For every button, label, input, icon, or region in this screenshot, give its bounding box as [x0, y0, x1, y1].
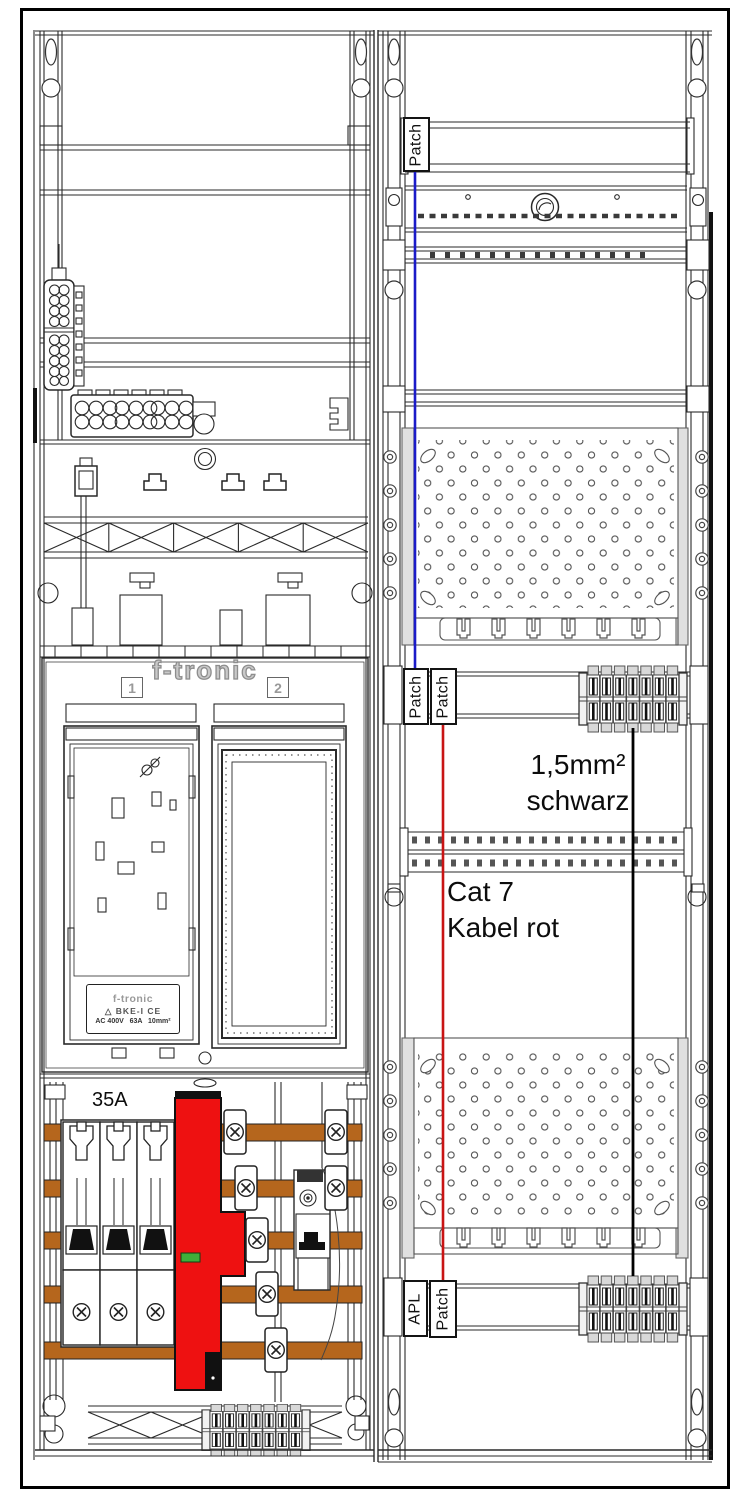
cable-truss-left: [44, 517, 368, 558]
fuse-unit: [63, 1122, 100, 1345]
apl-label-text: APL: [407, 1293, 425, 1324]
fuse-unit: [100, 1122, 137, 1345]
meter-field-2-badge: 2: [267, 677, 289, 698]
cable-hook-icon: [457, 1228, 470, 1247]
patch-label-bottom: Patch: [429, 1280, 457, 1338]
distribution-terminal-block-horizontal: [71, 390, 348, 437]
triangle-logo-icon: △: [105, 1006, 113, 1016]
label-strip-1: [66, 704, 196, 722]
distribution-terminal-strip-vertical: [44, 244, 84, 390]
cover-lock-panel: [386, 186, 706, 232]
fuse-assembly: [61, 1120, 176, 1347]
bke-brand: f-tronic: [87, 993, 179, 1005]
busbar-clamp: [235, 1166, 257, 1210]
keystone-jack-icon: [144, 474, 166, 490]
cable-hook-icon: [562, 619, 575, 638]
bke-ratings: AC 400V 63A 10mm²: [87, 1018, 179, 1025]
patch-label-mid-right: Patch: [430, 668, 457, 725]
wiring-diagram-page: Patch Patch Patch APL Patch 1,5mm² schwa…: [0, 0, 750, 1497]
bke-model-line: △ BKE-I CE: [87, 1006, 179, 1017]
cable-hook-icon: [597, 619, 610, 638]
label-strip-2: [214, 704, 344, 722]
cable-hook-icon: [492, 619, 505, 638]
black-cable-note-line2: schwarz: [493, 783, 663, 819]
red-cable-note: Cat 7 Kabel rot: [447, 874, 559, 946]
bke-type-label: f-tronic △ BKE-I CE AC 400V 63A 10mm²: [86, 984, 180, 1034]
lock-knob-icon: [195, 449, 216, 470]
cable-hook-icon: [632, 619, 645, 638]
fuse-rating-label: 35A: [92, 1089, 128, 1112]
patch-label-top-text: Patch: [408, 123, 426, 166]
multimedia-module-left: [38, 449, 372, 646]
rail-slot: [352, 39, 370, 97]
red-cable-note-line1: Cat 7: [447, 874, 559, 910]
busbar-clamp: [325, 1166, 347, 1210]
busbar-clamp: [256, 1272, 278, 1316]
cable-hook-icon: [562, 1228, 575, 1247]
switch-toggle-slot: [205, 1352, 221, 1390]
cable-hook-icon: [527, 619, 540, 638]
rail-slot: [42, 39, 60, 97]
meter-field-1-badge: 1: [121, 677, 143, 698]
terminal-block-bottom-left: [202, 1404, 310, 1455]
patch-label-bottom-text: Patch: [434, 1288, 452, 1331]
patch-label-mid-right-text: Patch: [435, 675, 453, 718]
patch-label-mid-left: Patch: [403, 668, 429, 725]
meter-cabinet-left-field: [33, 30, 378, 1462]
meter-field-2: [212, 726, 346, 1048]
busbar-clamp: [246, 1218, 268, 1262]
status-indicator: [181, 1253, 200, 1262]
busbar-clamp: [265, 1328, 287, 1372]
perforated-mounting-plate-1: [384, 428, 708, 645]
black-cable-note-line1: 1,5mm²: [493, 747, 663, 783]
cable-hook-icon: [527, 1228, 540, 1247]
bke-model: BKE-I: [116, 1006, 144, 1016]
fuse-unit: [137, 1122, 174, 1345]
ce-mark: CE: [147, 1006, 161, 1016]
keystone-jack-icon: [264, 474, 286, 490]
cable-hook-icon: [492, 1228, 505, 1247]
apl-label: APL: [403, 1280, 428, 1337]
busbar-clamp: [325, 1110, 347, 1154]
keystone-jack-icon: [222, 474, 244, 490]
cabinet-side-wall: [709, 212, 713, 1460]
red-cable-note-line2: Kabel rot: [447, 910, 559, 946]
busbar-section: [44, 1079, 367, 1402]
clip-rail-upper: [383, 240, 709, 270]
terminal-block-bottom-right: [579, 1276, 687, 1342]
terminal-block-mid-right: [579, 666, 687, 732]
cable-hook-icon: [457, 619, 470, 638]
patch-label-top: Patch: [403, 117, 430, 172]
din-rail-top-right: [401, 118, 694, 174]
busbar-clamp: [224, 1110, 246, 1154]
perforated-mounting-plate-2: [384, 1038, 708, 1258]
black-cable-note: 1,5mm² schwarz: [493, 747, 663, 819]
din-rail-mid-left: [40, 338, 370, 367]
module-junction-rail-1: [383, 386, 709, 412]
din-rail-top-left: [40, 145, 370, 195]
patch-label-mid-left-text: Patch: [407, 675, 425, 718]
cable-hook-icon: [597, 1228, 610, 1247]
